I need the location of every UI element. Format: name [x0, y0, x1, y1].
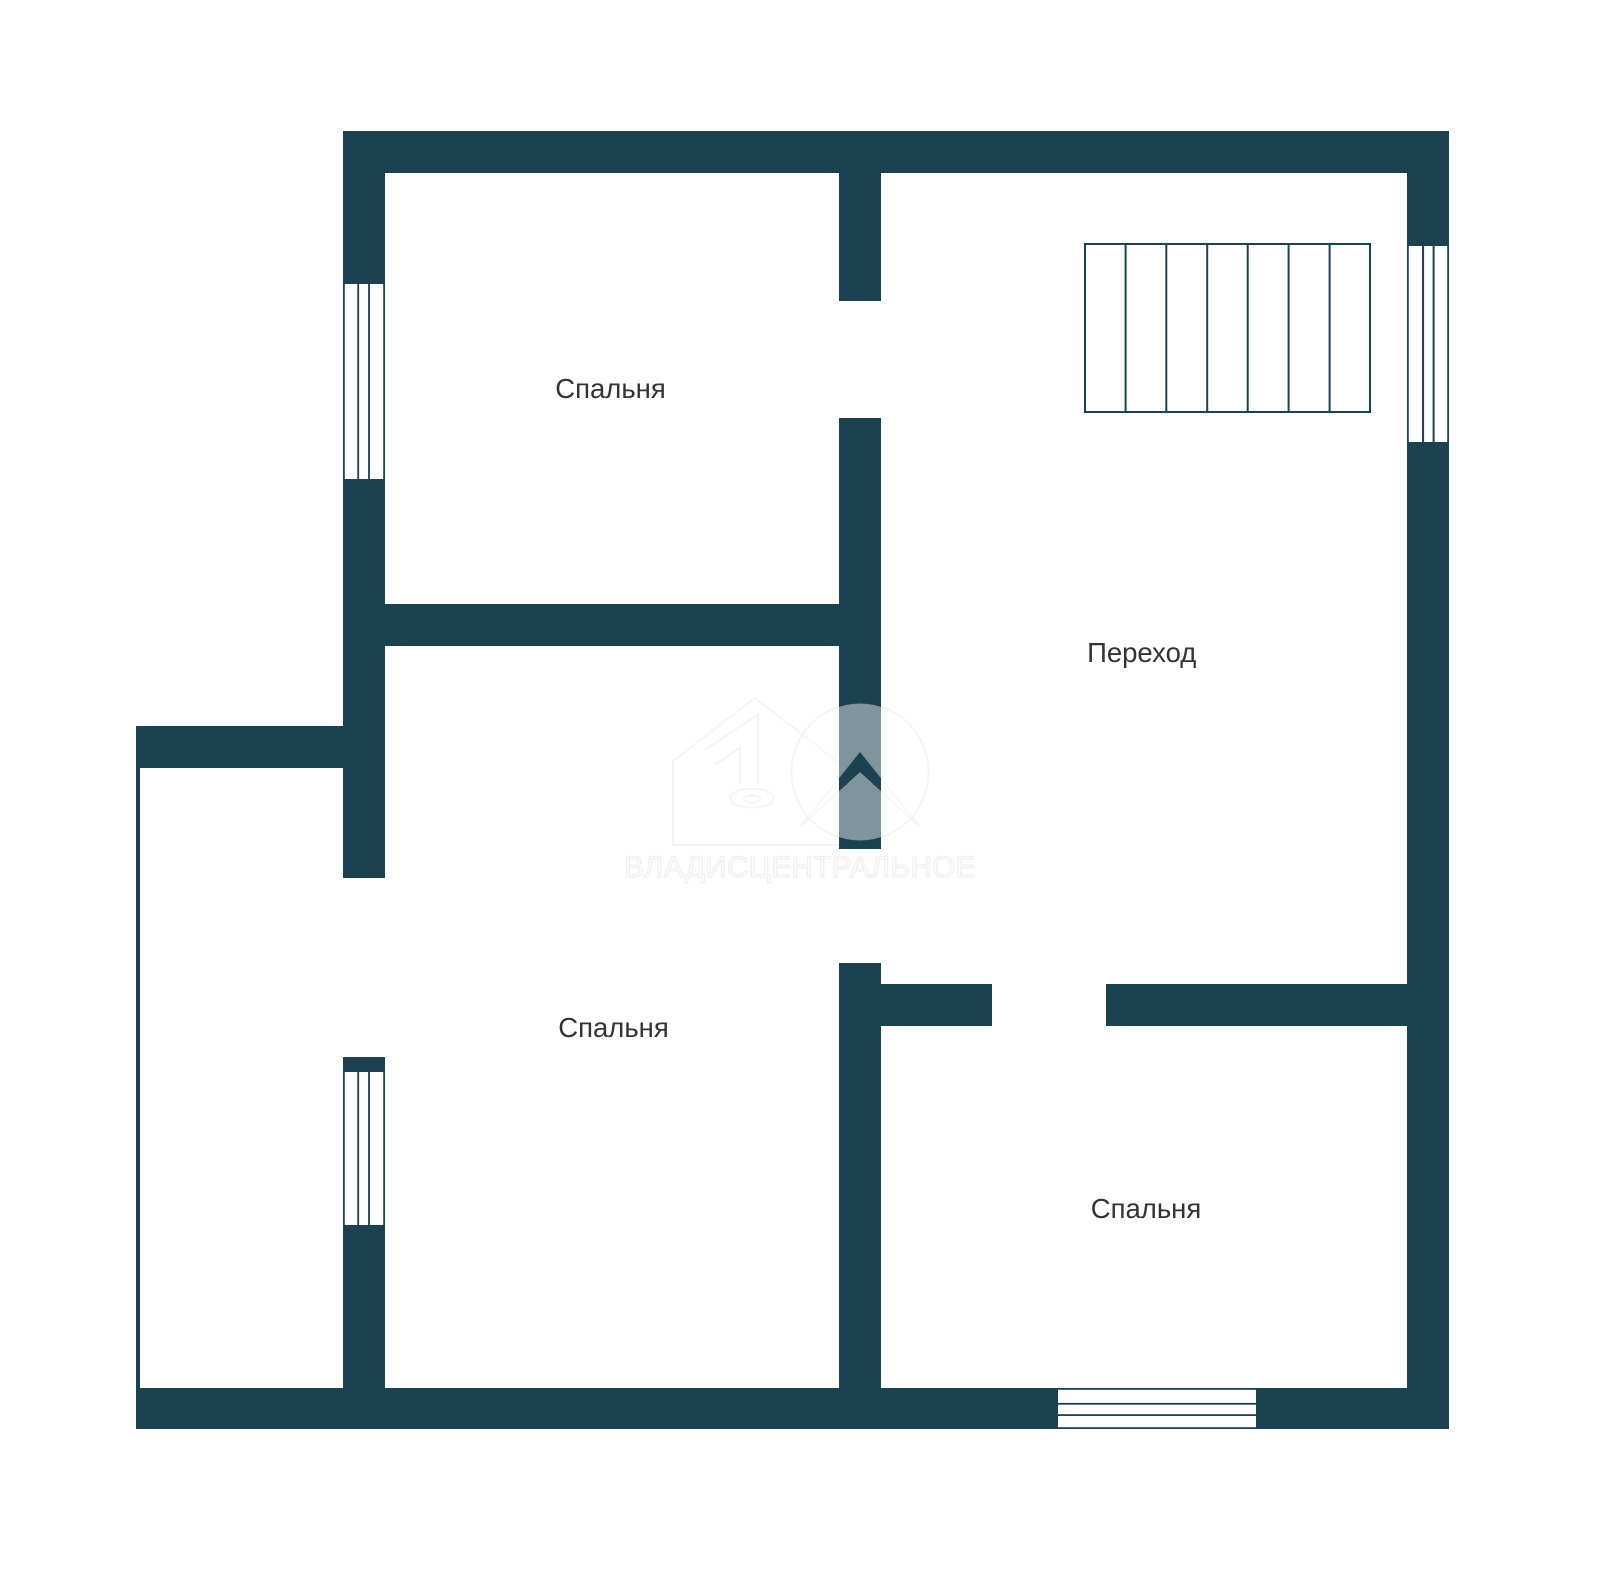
svg-text:ВЛАДИСЦЕНТРАЛЬНОЕ: ВЛАДИСЦЕНТРАЛЬНОЕ — [624, 851, 976, 884]
svg-text:Спальня: Спальня — [558, 1012, 669, 1043]
svg-text:Спальня: Спальня — [1091, 1193, 1202, 1224]
svg-text:Переход: Переход — [1087, 637, 1196, 668]
svg-text:Спальня: Спальня — [555, 373, 666, 404]
